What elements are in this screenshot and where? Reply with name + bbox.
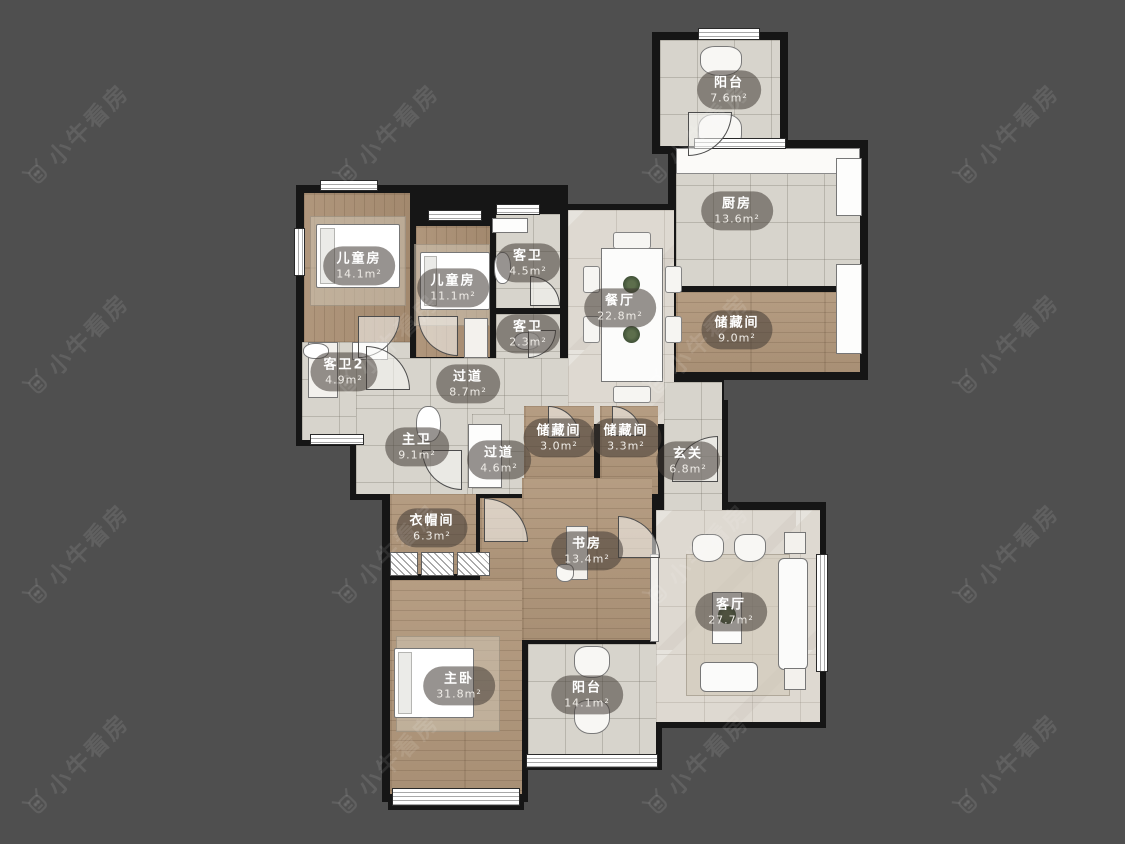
room-name: 儿童房 <box>430 273 476 289</box>
bull-logo-icon <box>16 362 58 404</box>
room-label-master-bath: 主卫9.1m² <box>385 427 449 466</box>
watermark: 小牛看房 <box>944 704 1066 826</box>
side-table-furniture <box>784 668 806 690</box>
bull-logo-icon <box>946 152 988 194</box>
bull-logo-icon <box>16 152 58 194</box>
watermark: 小牛看房 <box>14 74 136 196</box>
wardrobe-furniture <box>421 552 454 576</box>
room-area: 27.7m² <box>708 613 754 627</box>
room-area: 4.9m² <box>323 373 364 387</box>
room-label-kitchen: 厨房13.6m² <box>701 191 773 230</box>
room-name: 衣帽间 <box>409 513 454 529</box>
room-area: 2.3m² <box>509 335 547 349</box>
watermark-text: 小牛看房 <box>38 704 136 802</box>
room-name: 客卫 <box>509 319 547 335</box>
fridge-furniture <box>836 158 862 216</box>
room-area: 11.1m² <box>430 289 476 303</box>
room-area: 9.1m² <box>398 448 436 462</box>
watermark-text: 小牛看房 <box>38 284 136 382</box>
room-name: 储藏间 <box>536 423 581 439</box>
room-name: 储藏间 <box>714 315 759 331</box>
watermark-text: 小牛看房 <box>968 494 1066 592</box>
room-name: 客卫2 <box>323 357 364 373</box>
room-name: 储藏间 <box>603 423 648 439</box>
room-label-guest-bath-1: 客卫4.5m² <box>496 243 560 282</box>
room-name: 主卧 <box>436 671 482 687</box>
room-area: 13.4m² <box>564 552 610 566</box>
window <box>392 788 520 806</box>
kitchen-cabinet-furniture <box>836 264 862 354</box>
room-label-cloakroom: 衣帽间6.3m² <box>396 508 467 547</box>
bull-logo-icon <box>326 572 368 614</box>
room-label-living: 客厅27.7m² <box>695 592 767 631</box>
watermark-text: 小牛看房 <box>968 284 1066 382</box>
room-name: 阳台 <box>710 75 748 91</box>
tv-cabinet-furniture <box>650 554 659 642</box>
room-name: 书房 <box>564 536 610 552</box>
room-label-corridor-1: 过道8.7m² <box>436 364 500 403</box>
window <box>496 204 540 215</box>
room-area: 4.5m² <box>509 264 547 278</box>
room-name: 儿童房 <box>336 251 382 267</box>
room-area: 6.8m² <box>669 462 707 476</box>
bull-logo-icon <box>946 572 988 614</box>
room-name: 客卫 <box>509 248 547 264</box>
watermark: 小牛看房 <box>14 704 136 826</box>
watermark: 小牛看房 <box>944 284 1066 406</box>
room-area: 8.7m² <box>449 385 487 399</box>
bull-logo-icon <box>16 572 58 614</box>
bath-sink-furniture <box>492 218 528 233</box>
room-area: 14.1m² <box>336 267 382 281</box>
watermark-text: 小牛看房 <box>38 74 136 172</box>
room-label-kids-room-1: 儿童房14.1m² <box>323 246 395 285</box>
room-name: 厨房 <box>714 196 760 212</box>
watermark: 小牛看房 <box>944 74 1066 196</box>
room-label-kids-room-2: 儿童房11.1m² <box>417 268 489 307</box>
window <box>320 180 378 191</box>
room-name: 餐厅 <box>597 293 643 309</box>
sofa-long-furniture <box>778 558 808 670</box>
window <box>310 434 364 445</box>
dining-chair-furniture <box>665 316 682 343</box>
room-name: 过道 <box>480 445 518 461</box>
balcony-chair-furniture <box>574 646 610 678</box>
room-label-guest-bath-3: 客卫24.9m² <box>310 352 377 391</box>
room-area: 13.6m² <box>714 212 760 226</box>
room-area: 7.6m² <box>710 91 748 105</box>
window <box>294 228 305 276</box>
room-name: 玄关 <box>669 446 707 462</box>
bull-logo-icon <box>16 782 58 824</box>
room-area: 14.1m² <box>564 696 610 710</box>
room-name: 阳台 <box>564 680 610 696</box>
room-name: 过道 <box>449 369 487 385</box>
bull-logo-icon <box>636 782 678 824</box>
wardrobe-furniture <box>390 552 418 576</box>
room-label-storage-33: 储藏间3.3m² <box>590 418 661 457</box>
wardrobe-furniture <box>457 552 490 576</box>
room-area: 3.3m² <box>603 439 648 453</box>
table-plant-furniture <box>623 326 640 343</box>
room-label-balcony-top: 阳台7.6m² <box>697 70 761 109</box>
kids2-desk-furniture <box>464 318 488 358</box>
window <box>698 28 760 40</box>
room-area: 3.0m² <box>536 439 581 453</box>
sofa-small-furniture <box>700 662 758 692</box>
window <box>428 210 482 221</box>
room-label-corridor-2: 过道4.6m² <box>467 440 531 479</box>
room-area: 9.0m² <box>714 331 759 345</box>
side-table-furniture <box>784 532 806 554</box>
armchair-furniture <box>734 534 766 562</box>
room-label-foyer: 玄关6.8m² <box>656 441 720 480</box>
watermark-text: 小牛看房 <box>348 74 446 172</box>
room-label-study: 书房13.4m² <box>551 531 623 570</box>
watermark: 小牛看房 <box>14 494 136 616</box>
dining-chair-furniture <box>613 232 651 249</box>
room-label-master-bedroom: 主卧31.8m² <box>423 666 495 705</box>
dining-chair-furniture <box>665 266 682 293</box>
window <box>816 554 828 672</box>
room-label-storage-9: 储藏间9.0m² <box>701 310 772 349</box>
room-area: 22.8m² <box>597 309 643 323</box>
room-label-dining: 餐厅22.8m² <box>584 288 656 327</box>
room-name: 主卫 <box>398 432 436 448</box>
watermark-text: 小牛看房 <box>38 494 136 592</box>
room-name: 客厅 <box>708 597 754 613</box>
floorplan-canvas: 阳台7.6m²厨房13.6m²储藏间9.0m²餐厅22.8m²儿童房14.1m²… <box>0 0 1125 844</box>
room-label-balcony-bottom: 阳台14.1m² <box>551 675 623 714</box>
room-area: 6.3m² <box>409 529 454 543</box>
bull-logo-icon <box>326 782 368 824</box>
bull-logo-icon <box>946 782 988 824</box>
bull-logo-icon <box>946 362 988 404</box>
room-label-storage-30: 储藏间3.0m² <box>523 418 594 457</box>
room-area: 4.6m² <box>480 461 518 475</box>
room-area: 31.8m² <box>436 687 482 701</box>
watermark: 小牛看房 <box>324 74 446 196</box>
window <box>526 754 658 768</box>
watermark-text: 小牛看房 <box>968 74 1066 172</box>
watermark: 小牛看房 <box>944 494 1066 616</box>
armchair-furniture <box>692 534 724 562</box>
watermark: 小牛看房 <box>14 284 136 406</box>
room-label-guest-bath-2: 客卫2.3m² <box>496 314 560 353</box>
watermark-text: 小牛看房 <box>968 704 1066 802</box>
dining-chair-furniture <box>613 386 651 403</box>
